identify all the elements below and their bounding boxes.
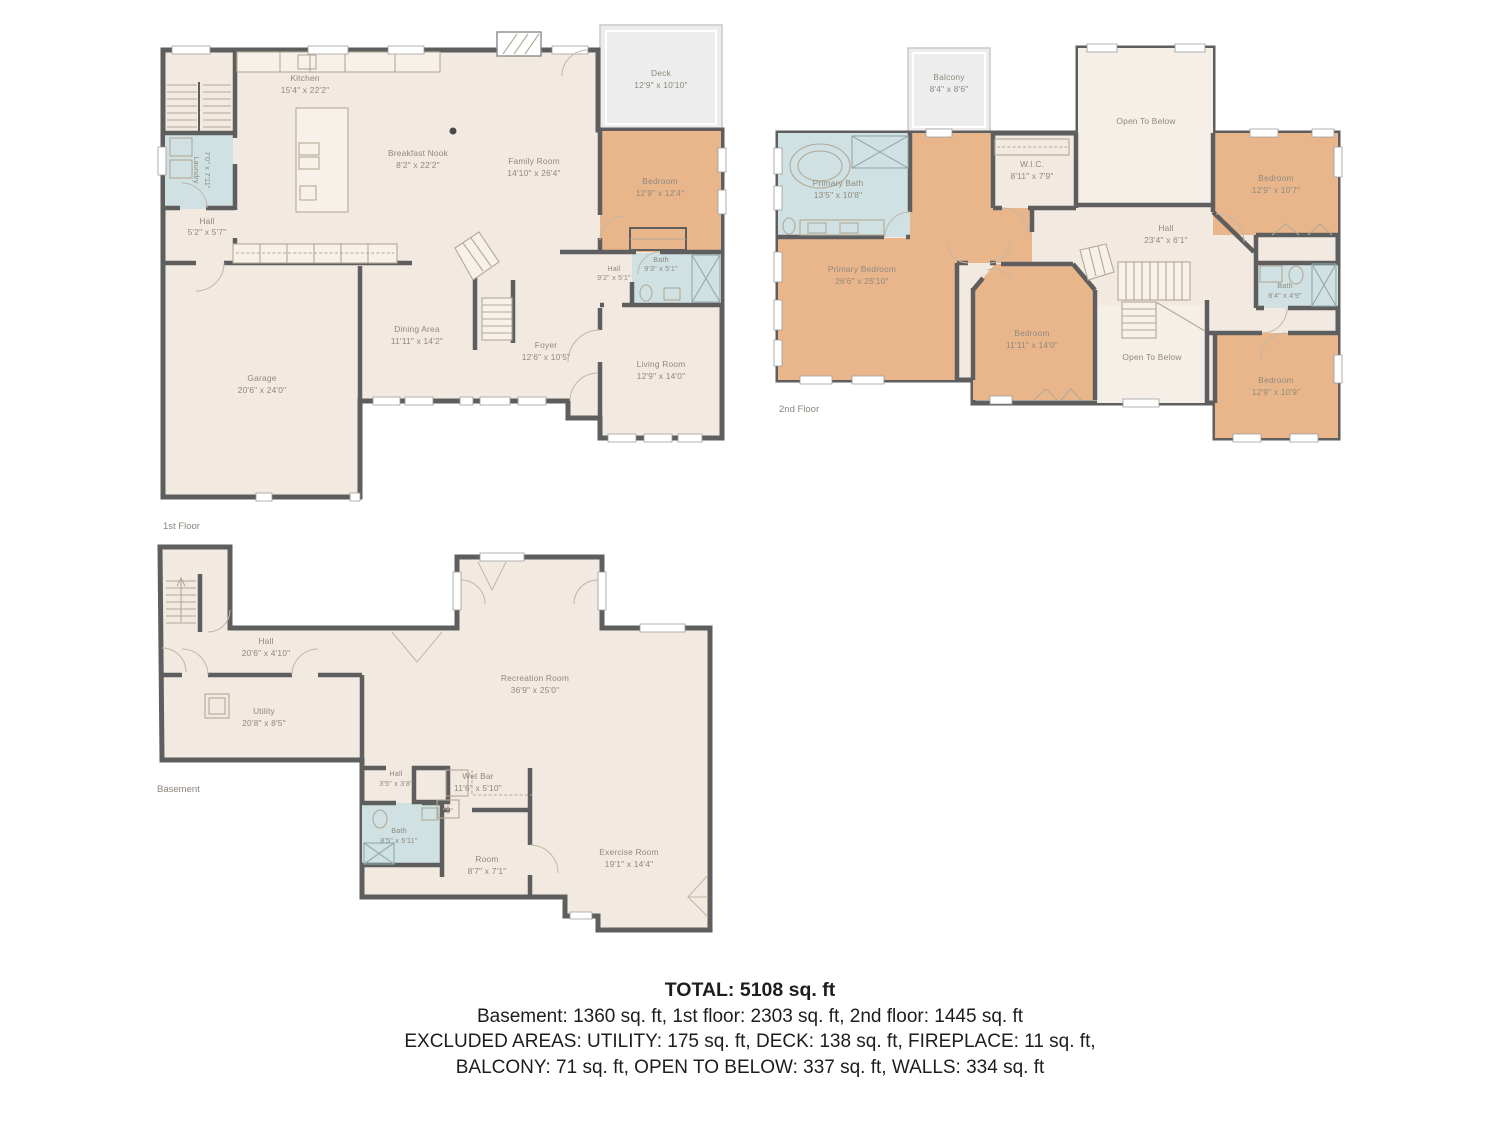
summary-excluded-areas-line2: BALCONY: 71 sq. ft, OPEN TO BELOW: 337 s…: [0, 1058, 1500, 1077]
room-dims-rec: 36'9" x 25'0": [511, 685, 560, 695]
floor-label-second: 2nd Floor: [779, 404, 819, 415]
room-dims-bath1f: 9'3" x 5'1": [644, 264, 678, 273]
room-label-exercise: Exercise Room: [599, 847, 658, 857]
bedroom-lower-right: [1215, 333, 1338, 438]
room-label-hallsm: Hall: [607, 264, 620, 273]
room-label-bedroom4: Bedroom: [1258, 375, 1293, 385]
room-dims-deck: 12'9" x 10'10": [634, 80, 687, 90]
room-dims-hall1f: 5'2" x 5'7": [188, 227, 227, 237]
room-label-room: Room: [475, 854, 498, 864]
room-label-hall2f: Hall: [1158, 223, 1173, 233]
summary-excluded-areas-line1: EXCLUDED AREAS: UTILITY: 175 sq. ft, DEC…: [0, 1032, 1500, 1051]
room-dims-bedroom2: 12'9" x 10'7": [1252, 185, 1301, 195]
fireplace-column: [450, 128, 457, 135]
room-label-kitchen: Kitchen: [290, 73, 319, 83]
room-dims-bedroom1f: 12'9" x 12'4": [636, 188, 685, 198]
room-dims-hallb2: 3'5" x 3'8": [379, 779, 413, 788]
room-dims-pbed: 26'6" x 25'10": [835, 276, 888, 286]
room-dims-wic: 8'11" x 7'9": [1010, 171, 1053, 181]
room-label-otb-top: Open To Below: [1116, 116, 1176, 126]
room-label-bedroom3: Bedroom: [1014, 328, 1049, 338]
summary-total: TOTAL: 5108 sq. ft: [0, 981, 1500, 1000]
room-dims-hall2f: 23'4" x 6'1": [1144, 235, 1188, 245]
room-label-garage: Garage: [247, 373, 276, 383]
room-dims-utility: 20'8" x 8'5": [242, 718, 286, 728]
room-dims-breakfast: 8'2" x 22'2": [396, 160, 440, 170]
room-dims-garage: 20'6" x 24'0": [238, 385, 287, 395]
floorplan-page: Kitchen 15'4" x 22'2" Breakfast Nook 8'2…: [0, 0, 1500, 1125]
room-label-hallb2: Hall: [389, 769, 402, 778]
room-dims-laundry: 7'0" x 7'11": [203, 151, 212, 189]
room-label-living: Living Room: [637, 359, 686, 369]
room-label-otb-bottom: Open To Below: [1122, 352, 1182, 362]
room-label-hallb: Hall: [258, 636, 273, 646]
bedroom-upper-right: [1213, 133, 1338, 235]
room-label-pbed: Primary Bedroom: [828, 264, 896, 274]
room-label-breakfast: Breakfast Nook: [388, 148, 449, 158]
room-dims-bathb: 8'5" x 5'11": [380, 836, 418, 845]
room-label-bath1f: Bath: [653, 255, 669, 264]
room-label-hall1f: Hall: [199, 216, 214, 226]
room-label-bedroom1f: Bedroom: [642, 176, 677, 186]
floor-plan-canvas: Kitchen 15'4" x 22'2" Breakfast Nook 8'2…: [0, 0, 1500, 960]
open-to-below-top: [1078, 48, 1213, 205]
room-label-utility: Utility: [253, 706, 275, 716]
room-label-family: Family Room: [508, 156, 560, 166]
room-label-pbath: Primary Bath: [813, 178, 864, 188]
room-dims-living: 12'9" x 14'0": [637, 371, 686, 381]
room-label-bedroom2: Bedroom: [1258, 173, 1293, 183]
room-label-wetbar: Wet Bar: [462, 771, 494, 781]
room-label-dining: Dining Area: [394, 324, 440, 334]
room-dims-foyer: 12'6" x 10'5": [522, 352, 571, 362]
summary-floor-areas: Basement: 1360 sq. ft, 1st floor: 2303 s…: [0, 1007, 1500, 1026]
room-dims-family: 14'10" x 26'4": [507, 168, 560, 178]
basement-outline: [160, 547, 710, 930]
room-dims-hallb: 20'6" x 4'10": [242, 648, 291, 658]
basement-plan: Hall 20'6" x 4'10" Utility 20'8" x 8'5" …: [157, 547, 710, 930]
floor-label-basement: Basement: [157, 784, 200, 795]
room-dims-balcony: 8'4" x 8'6": [930, 84, 969, 94]
room-label-bathb: Bath: [391, 826, 407, 835]
room-dims-dining: 11'11" x 14'2": [391, 336, 443, 346]
room-label-bath2f: Bath: [1277, 281, 1293, 290]
bath-second-floor: [1256, 263, 1338, 308]
room-label-wic: W.I.C.: [1020, 159, 1044, 169]
room-dims-bath2f: 8'4" x 4'9": [1268, 291, 1302, 300]
room-dims-room: 8'7" x 7'1": [468, 866, 507, 876]
room-dims-hallsm: 9'2" x 5'1": [597, 273, 631, 282]
area-summary: TOTAL: 5108 sq. ft Basement: 1360 sq. ft…: [0, 981, 1500, 1083]
room-dims-exercise: 19'1" x 14'4": [605, 859, 654, 869]
floor-label-first: 1st Floor: [163, 521, 200, 532]
bath-first-floor: [632, 253, 721, 304]
room-label-laundry: Laundry: [192, 156, 201, 184]
room-dims-wetbar: 11'6" x 5'10": [454, 783, 502, 793]
room-dims-bedroom3: 11'11" x 14'0": [1006, 340, 1058, 350]
room-label-rec: Recreation Room: [501, 673, 569, 683]
room-dims-bedroom4: 12'9" x 10'9": [1252, 387, 1301, 397]
room-label-foyer: Foyer: [535, 340, 557, 350]
second-floor-plan: Balcony 8'4" x 8'6" Primary Bath 13'5" x…: [774, 44, 1342, 442]
room-dims-kitchen: 15'4" x 22'2": [281, 85, 330, 95]
room-dims-pbath: 13'5" x 10'8": [814, 190, 863, 200]
room-label-balcony: Balcony: [933, 72, 965, 82]
kitchen-island: [296, 108, 348, 212]
room-label-deck: Deck: [651, 68, 671, 78]
